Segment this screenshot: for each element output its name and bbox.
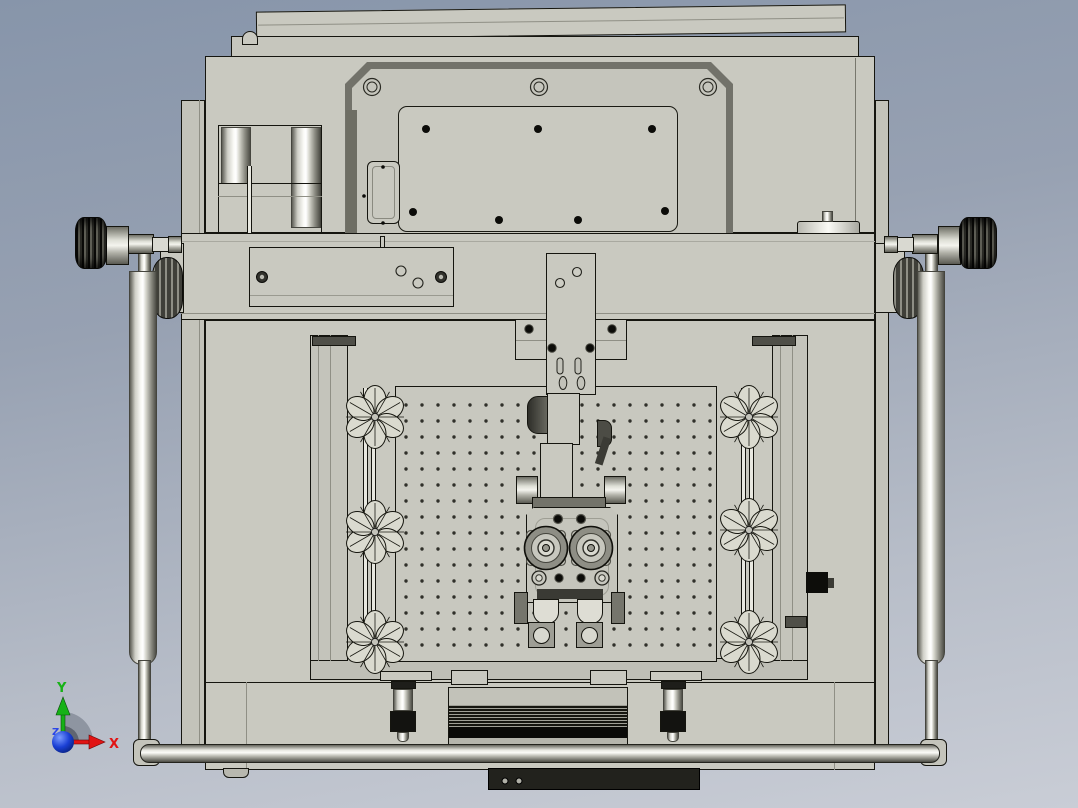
gripper-bracket-right [576,622,603,648]
star-knob [717,385,781,449]
gripper-cylinder-left [533,599,559,624]
shaft-left-seg2 [152,237,169,252]
gripper-bore-right [581,627,598,644]
damper-body-right [663,689,683,711]
damper-tip-right [667,732,679,742]
triad-y-label: Y [56,681,67,696]
head-dark-bar [537,589,603,599]
damper-flange-left [380,671,432,681]
damper-sleeve-left [390,711,416,732]
star-center [746,639,753,646]
shaft-left-seg3 [168,236,182,253]
hand-knob-right [959,217,997,269]
rod-tube-left [129,271,157,665]
triad-y-arrowhead [56,697,70,715]
star-center [372,414,379,421]
star-center [372,529,379,536]
damper-body-left [393,689,413,711]
star-knob [717,498,781,562]
vent-tab-left [451,670,488,685]
star-knob [717,610,781,674]
star-center [372,639,379,646]
star-center [746,527,753,534]
damper-flange-right [650,671,702,681]
shaft-right-seg1 [912,234,938,254]
star-knob [343,610,407,674]
head-clamp-bottom-left [514,592,528,624]
star-center [746,414,753,421]
head-clamp-top-right [604,476,626,504]
damper-sleeve-right [660,711,686,732]
triad-z-sphere [52,731,74,753]
wing-line-left [516,340,548,341]
z-column-lower [540,443,573,503]
gripper-bracket-left [528,622,555,648]
handle-bar [140,744,940,763]
triad-x-label: X [109,737,119,752]
triad-x-arrowhead [89,735,105,749]
damper-washer-left [391,681,416,689]
vent-band-top [449,688,627,705]
knob-hub-right [938,226,961,265]
gripper-bore-left [533,627,550,644]
star-knob [343,385,407,449]
shaft-right-seg2 [897,237,914,252]
shaft-right-seg3 [884,236,898,253]
star-knob [343,500,407,564]
head-clamp-bottom-right [611,592,625,624]
head-inner-contour [535,518,609,596]
rod-tube-right [917,271,945,665]
damper-tip-left [397,732,409,742]
damper-washer-right [661,681,686,689]
cad-viewport[interactable]: Z Y X [0,0,1078,808]
knob-hub-left [106,226,129,265]
z-slide-plate [546,253,596,395]
z-column-upper [547,393,580,445]
bottom-dark-plate [488,768,700,790]
vent-block [448,687,628,748]
gripper-cylinder-right [577,599,603,624]
orientation-triad: Z Y X [25,672,175,797]
cam-left [527,396,549,434]
shaft-left-seg1 [128,234,154,254]
foot-left [223,768,249,778]
wing-line-right [594,340,626,341]
vent-tab-right [590,670,627,685]
vent-black-band [449,727,627,738]
vent-stripes [449,705,627,727]
hand-knob-left [75,217,107,269]
